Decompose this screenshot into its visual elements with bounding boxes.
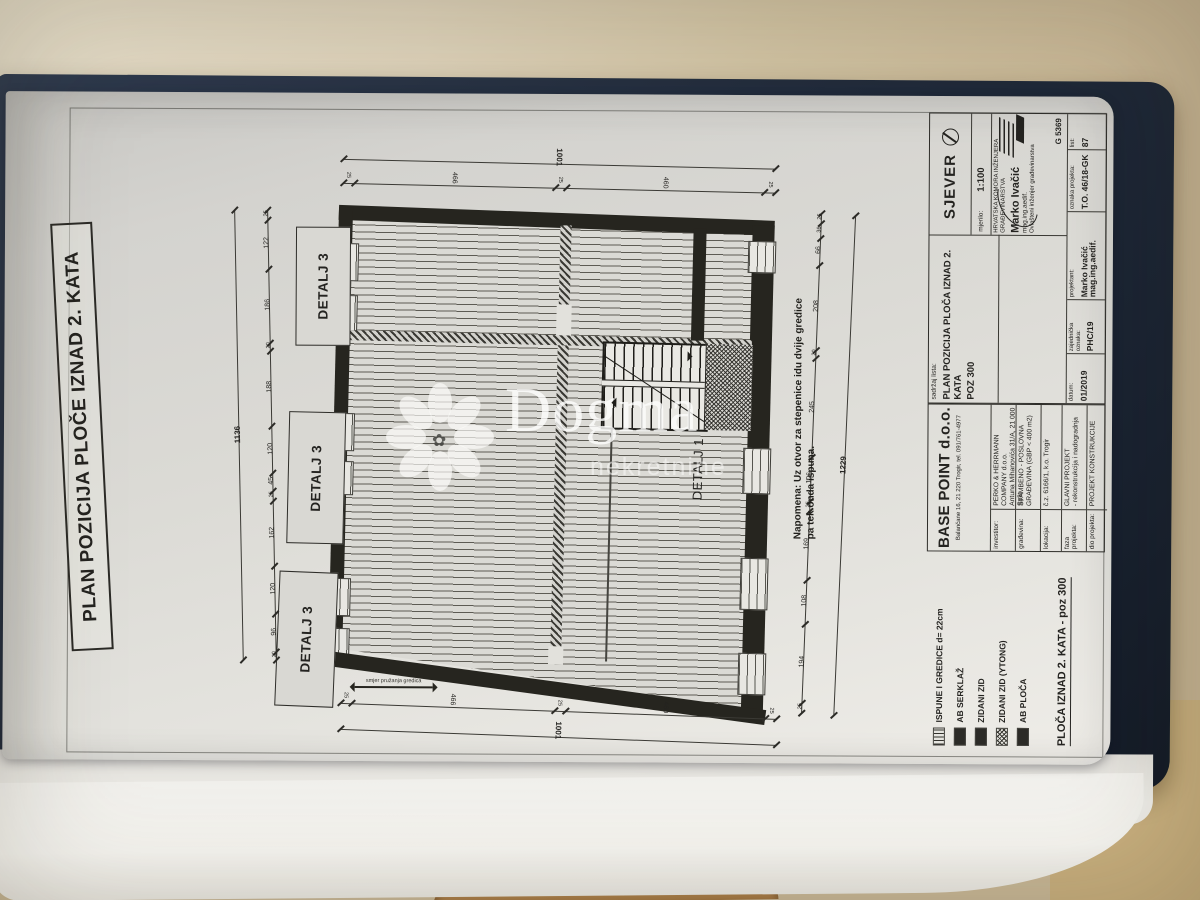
stair-arrow	[687, 351, 697, 361]
company-name: BASE POINT d.o.o.	[936, 404, 954, 550]
row-value-line: PERKO & HERRMANN COMPANY d.o.o.	[993, 405, 1010, 506]
window-symbol	[748, 241, 777, 274]
scale-label: mjerilo:	[978, 192, 985, 235]
dim-value: 25	[263, 198, 270, 228]
dim-value: 25	[767, 696, 774, 726]
sheet-title-text: PLAN POZICIJA PLOČE IZNAD 2. KATA	[62, 251, 103, 622]
company-address: Balančane 16, 21 220 Trogir, tel. 091/76…	[956, 405, 963, 551]
floor-plan: DETALJ 1	[327, 203, 775, 725]
row-value: PROJEKT KONSTRUKCIJE	[1087, 405, 1108, 509]
scale-cell: mjerilo: 1:100	[972, 114, 993, 235]
window-symbol	[739, 558, 768, 611]
note-text: Napomena: Uz otvor za stepenice idu dvij…	[791, 279, 822, 539]
meta-value: PHC/19	[1086, 302, 1095, 351]
dim-value: 1001	[555, 142, 565, 172]
dim-value: 1001	[553, 715, 563, 745]
arrow-head-right-icon	[433, 682, 443, 692]
legend-swatch-lines-icon	[932, 727, 944, 745]
joist-direction-arrow: smjer pružanja gredica	[347, 677, 441, 695]
dim-value: 25	[268, 480, 275, 510]
dim-value: 120	[267, 433, 275, 463]
detail-3-label: DETALJ 3	[308, 444, 325, 511]
north-label: SJEVER	[942, 154, 959, 219]
chamber-flag-icon	[1016, 114, 1024, 144]
meta-label: oznaka projekta:	[1070, 152, 1077, 209]
stair-opening-hatch	[704, 344, 753, 431]
detail-3-callout: DETALJ 3	[274, 571, 338, 708]
meta-row: datum: 01/2019 zajednička oznaka: PHC/19…	[1067, 114, 1107, 403]
north-cell: SJEVER	[930, 113, 973, 234]
meta-value: Marko Ivačić mag.ing.aedif.	[1080, 214, 1097, 297]
detail-3-label: DETALJ 3	[316, 253, 331, 320]
row-value: GLAVNI PROJEKT - rekonstrukcija i nadogr…	[1062, 405, 1087, 509]
legend-item: ZIDANI ZID (YTONG)	[991, 554, 1013, 748]
meta-label: zajednička oznaka:	[1069, 302, 1082, 351]
row-value-line: č.z. 6166/1, k.o. Trogir	[1043, 405, 1052, 506]
north-symbol-icon	[942, 129, 959, 146]
meta-label: list:	[1070, 118, 1077, 147]
row-value: č.z. 6166/1, k.o. Trogir	[1041, 405, 1062, 509]
row-value: STAMBENO - POSLOVNA GRAĐEVINA (GBP < 400…	[1016, 405, 1041, 509]
meta-value: 87	[1080, 118, 1089, 147]
info-row: dio projekta: PROJEKT KONSTRUKCIJE	[1087, 405, 1108, 551]
meta-cell: datum: 01/2019	[1067, 353, 1105, 403]
dim-value: 120	[270, 574, 278, 604]
dim-value: 1229	[838, 450, 848, 480]
dim-value: 20	[265, 330, 272, 360]
meta-value: T.O. 46/18-GK	[1080, 152, 1089, 209]
row-label: građevina:	[1016, 509, 1040, 551]
legend-item: AB SERKLAŽ	[949, 554, 971, 748]
drawing-caption: PLOČA IZNAD 2. KATA - poz 300	[1056, 577, 1072, 746]
info-row: investitor: PERKO & HERRMANN COMPANY d.o…	[991, 405, 1017, 551]
legend: ISPUNE I GREDICE d= 22cm AB SERKLAŽ ZIDA…	[928, 553, 1105, 748]
dim-value: 466	[449, 684, 457, 714]
legend-swatch-cross-icon	[995, 728, 1007, 746]
info-row: faza projekta: GLAVNI PROJEKT - rekonstr…	[1062, 405, 1088, 551]
chamber-stamp-cell: HRVATSKA KOMORA INŽENJERA GRAĐEVINARSTVA…	[992, 114, 1069, 235]
arrow-head-left-icon	[345, 682, 355, 692]
legend-label: AB PLOČA	[1017, 679, 1027, 723]
page-curl	[0, 773, 1144, 900]
meta-cell: projektant: Marko Ivačić mag.ing.aedif.	[1067, 211, 1105, 299]
joist-direction-label: smjer pružanja gredica	[347, 678, 441, 684]
legend-swatch-solid-icon	[953, 728, 965, 746]
dim-value: 460	[661, 692, 669, 722]
dim-value: 108	[800, 585, 808, 615]
dim-value: 188	[266, 372, 274, 402]
dim-value: 25	[797, 691, 804, 721]
legend-item: ISPUNE I GREDICE d= 22cm	[928, 553, 950, 747]
legend-label: AB SERKLAŽ	[954, 668, 964, 723]
dim-value: 186	[264, 289, 272, 319]
content-position: POZ 300	[966, 239, 978, 400]
title-block: ISPUNE I GREDICE d= 22cm AB SERKLAŽ ZIDA…	[926, 112, 1107, 748]
dim-value: 122	[263, 228, 271, 258]
meta-label: projektant:	[1069, 214, 1076, 297]
legend-label: ZIDANI ZID (YTONG)	[996, 640, 1006, 723]
drawing-sheet: PLAN POZICIJA PLOČE IZNAD 2. KATA	[2, 91, 1113, 765]
meta-cell: zajednička oznaka: PHC/19	[1067, 299, 1105, 353]
content-label: sadržaj lista:	[931, 238, 939, 399]
row-value-line: GRAĐEVINA (GBP < 400 m2)	[1026, 405, 1035, 506]
dim-value: 162	[269, 517, 277, 547]
photo-of-architectural-plan: PLAN POZICIJA PLOČE IZNAD 2. KATA	[0, 0, 1200, 900]
detail-1-label: DETALJ 1	[689, 429, 706, 509]
window-symbol	[737, 653, 766, 696]
meta-cell: list: 87	[1068, 116, 1106, 149]
company-block: BASE POINT d.o.o. Balančane 16, 21 220 T…	[927, 403, 1106, 552]
row-label: investitor:	[991, 509, 1015, 551]
dim-value: 194	[798, 647, 806, 677]
wall-segment	[691, 229, 707, 341]
detail-3-callout: DETALJ 3	[295, 227, 351, 346]
content-value: PLAN POZICIJA PLOČA IZNAD 2. KATA	[942, 239, 965, 400]
company-header: BASE POINT d.o.o. Balančane 16, 21 220 T…	[928, 404, 992, 550]
meta-value: 01/2019	[1079, 356, 1088, 401]
sheet-content-cell: sadržaj lista: PLAN POZICIJA PLOČA IZNAD…	[929, 234, 1000, 402]
legend-swatch-solid-icon	[974, 728, 986, 746]
note-line-2: pa tek onda ispuna.	[804, 279, 818, 539]
arrow-bar	[355, 686, 433, 688]
detail-3-callout: DETALJ 3	[286, 411, 346, 544]
sheet-info-block: sadržaj lista: PLAN POZICIJA PLOČA IZNAD…	[928, 112, 1108, 404]
row-value-line: PROJEKT KONSTRUKCIJE	[1089, 405, 1098, 506]
empty-cell	[999, 235, 1068, 403]
legend-item: AB PLOČA	[1012, 554, 1034, 748]
row-value: PERKO & HERRMANN COMPANY d.o.o. Antuna M…	[991, 405, 1016, 509]
row-label: dio projekta:	[1087, 509, 1107, 551]
row-label: faza projekta:	[1062, 509, 1086, 551]
meta-label: datum:	[1069, 356, 1076, 401]
license-number: G 5369	[1054, 118, 1063, 144]
dim-value: 1136	[233, 420, 243, 450]
info-row: lokacija: č.z. 6166/1, k.o. Trogir	[1041, 405, 1063, 551]
detail-3-label: DETALJ 3	[298, 606, 316, 673]
scale-value: 1:100	[976, 167, 987, 191]
row-value-line: - rekonstrukcija i nadogradnja	[1072, 405, 1081, 506]
legend-item: ZIDANI ZID	[970, 554, 992, 748]
row-label: lokacija:	[1041, 509, 1061, 551]
meta-cell: oznaka projekta: T.O. 46/18-GK	[1068, 149, 1106, 211]
legend-label: ZIDANI ZID	[975, 678, 985, 722]
legend-swatch-solid-icon	[1016, 728, 1028, 746]
dim-value: 20	[271, 639, 278, 669]
book-pages-below	[0, 752, 1168, 900]
dim-value: 66	[815, 235, 823, 265]
stair-arrow	[606, 397, 616, 407]
window-symbol	[742, 448, 771, 495]
info-row: građevina: STAMBENO - POSLOVNA GRAĐEVINA…	[1016, 405, 1042, 551]
door-opening	[548, 646, 563, 664]
legend-label: ISPUNE I GREDICE d= 22cm	[933, 608, 944, 722]
